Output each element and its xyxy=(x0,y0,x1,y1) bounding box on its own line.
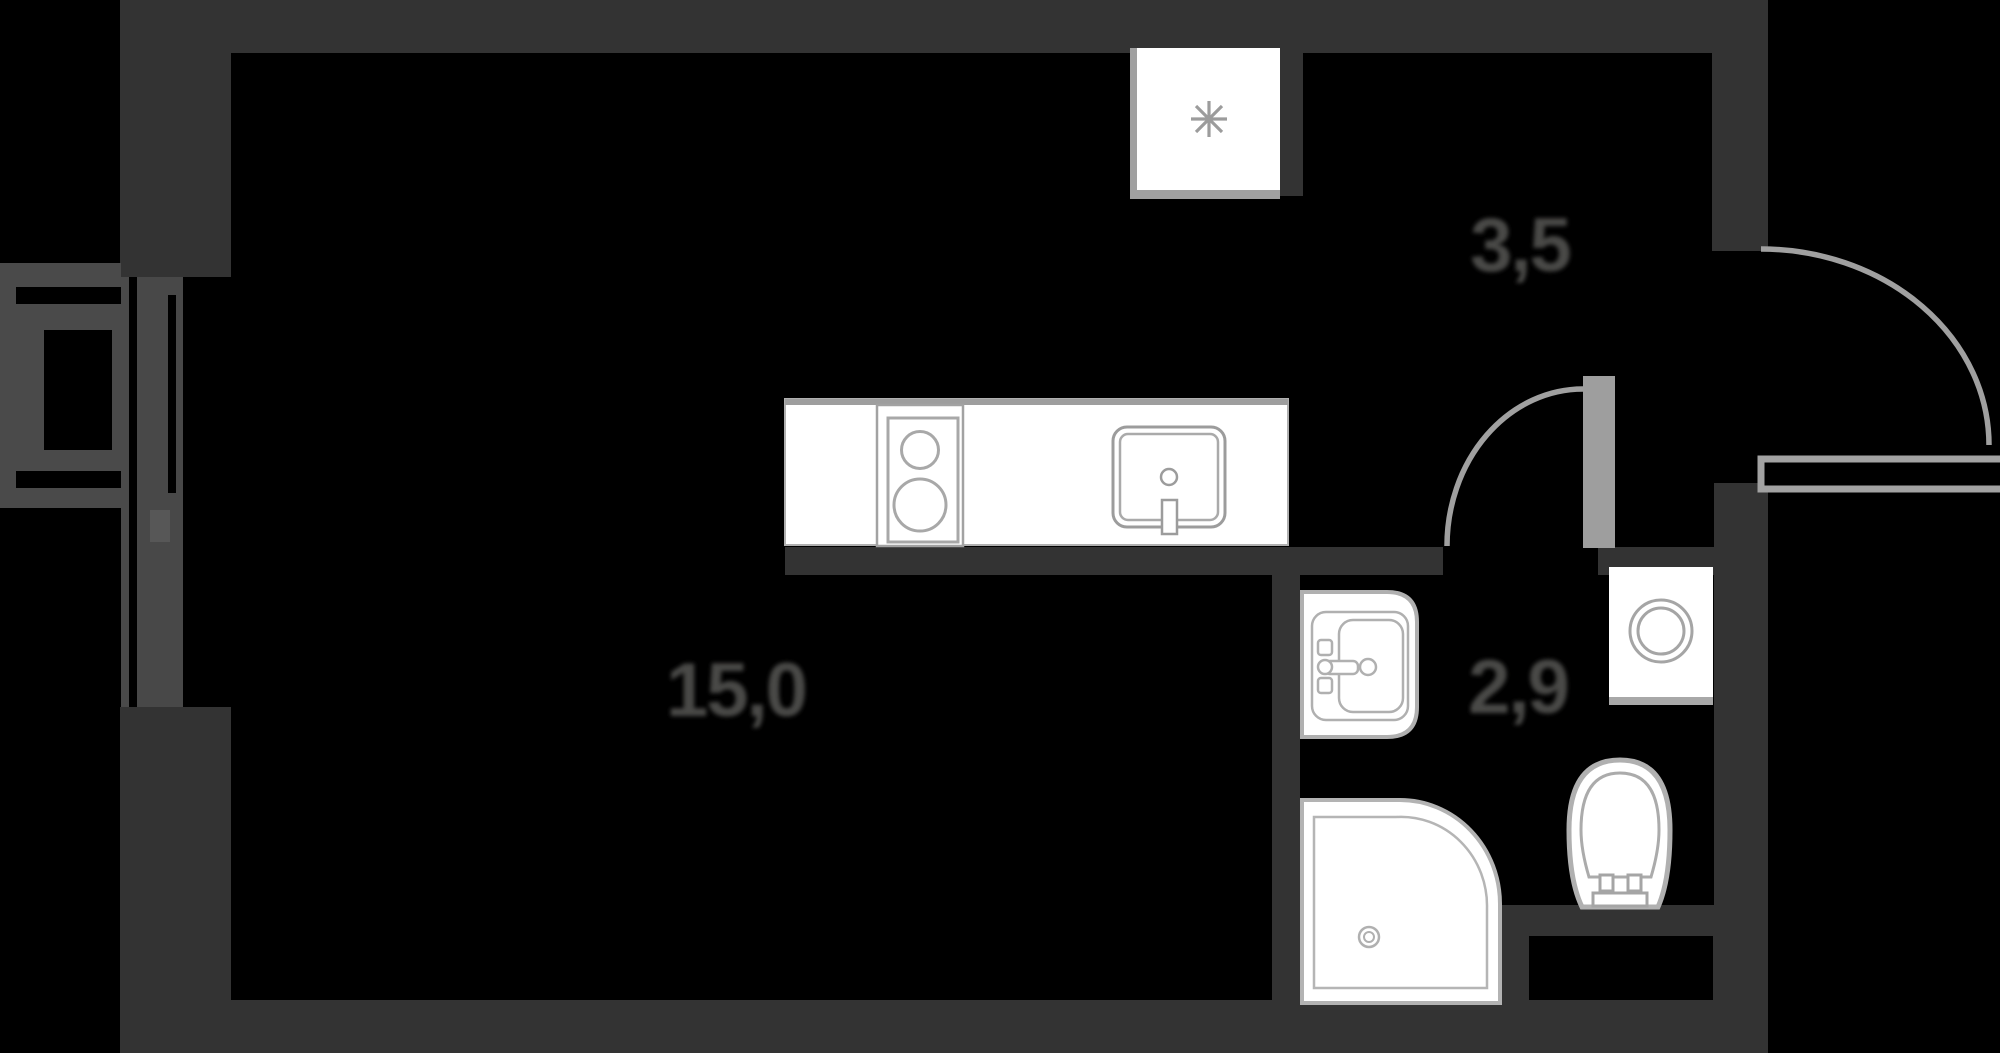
svg-text:15,0: 15,0 xyxy=(666,648,806,733)
svg-text:2,9: 2,9 xyxy=(1468,645,1568,730)
svg-text:3,5: 3,5 xyxy=(1470,203,1570,288)
